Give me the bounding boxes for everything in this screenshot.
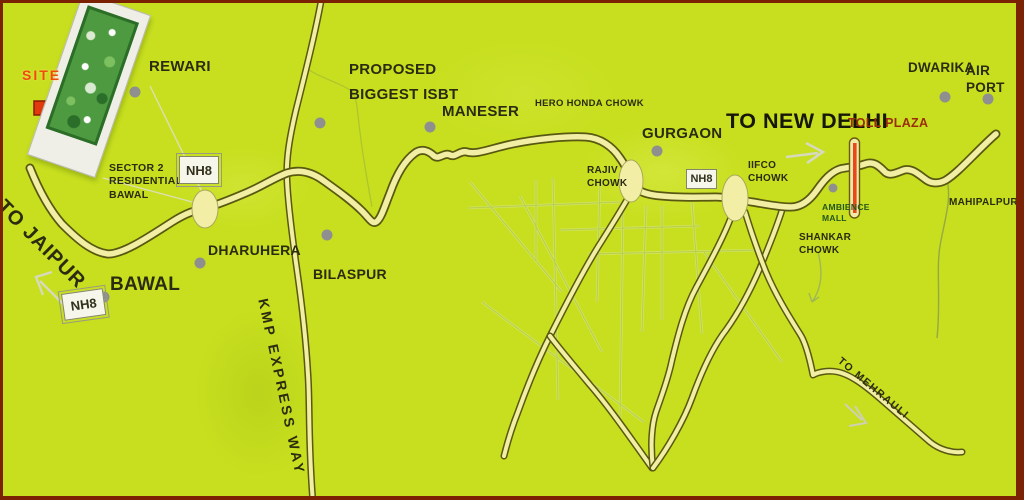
iffco-chowk-circle	[722, 175, 748, 221]
mehrauli-road	[745, 212, 962, 452]
rajiv-chowk-south-road	[504, 198, 628, 456]
label-gurgaon: GURGAON	[642, 124, 722, 143]
label-dharuhera: DHARUHERA	[208, 242, 301, 260]
city-dot-maneser	[425, 122, 436, 133]
label-maneser: MANESER	[442, 102, 519, 121]
to-mehrauli-arrow-icon	[845, 404, 866, 426]
nh8-badge-bawal: NH8	[179, 156, 219, 184]
city-dot-bilaspur	[322, 230, 333, 241]
to-new-delhi-arrow-icon	[786, 143, 823, 163]
label-rajiv-chowk: RAJIV CHOWK	[587, 165, 627, 191]
label-shankar-chowk: SHANKAR CHOWK	[799, 232, 851, 258]
city-dot-rewari	[130, 87, 141, 98]
nh8-badge-text: NH8	[690, 173, 712, 185]
nh8-badge-jaipur: NH8	[61, 288, 106, 321]
shankar-chowk-ramp	[809, 252, 821, 302]
city-dot-ambience-mall	[829, 184, 838, 193]
label-mahipalpur: MAHIPALPUR	[949, 197, 1018, 210]
label-hero-honda-chowk: HERO HONDA CHOWK	[535, 98, 644, 110]
city-dot-dwarika	[940, 92, 951, 103]
label-site: SITE	[22, 67, 61, 85]
label-iifco-chowk: IIFCO CHOWK	[748, 160, 788, 186]
city-dot-gurgaon	[652, 146, 663, 157]
label-ambience-mall: AMBIENCE MALL	[822, 202, 870, 224]
label-proposed-isbt: PROPOSED BIGGEST ISBT	[349, 58, 458, 108]
mahipalpur-lane	[937, 180, 949, 338]
label-dwarika: DWARIKA	[908, 59, 975, 76]
label-bawal: BAWAL	[110, 273, 180, 297]
label-toll-plaza: TOLL PLAZA	[848, 115, 928, 131]
route-map: SITE REWARI SECTOR 2 RESIDENTIAL BAWAL P…	[0, 0, 1024, 500]
rajiv-southeast-branch-road	[550, 336, 652, 468]
nh8-badge-text: NH8	[186, 163, 212, 178]
city-dot-dharuhera	[195, 258, 206, 269]
label-sector2-bawal: SECTOR 2 RESIDENTIAL BAWAL	[109, 162, 182, 202]
label-bilaspur: BILASPUR	[313, 266, 387, 284]
city-dot-isbt	[315, 118, 326, 129]
label-airport: AIR PORT	[966, 62, 1016, 97]
label-rewari: REWARI	[149, 57, 211, 76]
bawal-junction-circle	[192, 190, 218, 228]
nh8-badge-text: NH8	[70, 295, 98, 313]
nh8-badge-delhi: NH8	[686, 169, 717, 189]
